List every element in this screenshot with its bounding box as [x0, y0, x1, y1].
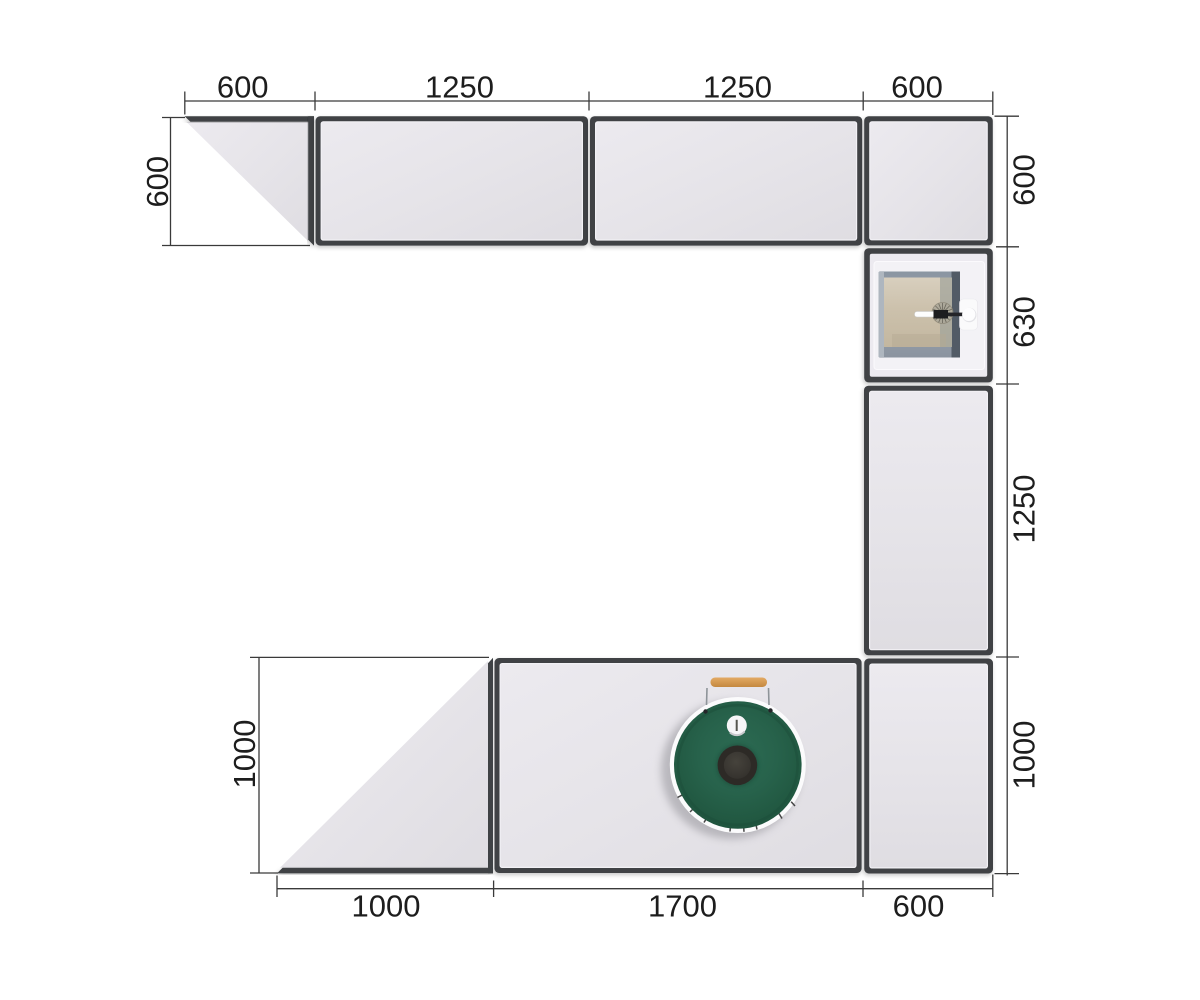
svg-text:1000: 1000	[227, 720, 262, 789]
svg-text:600: 600	[1007, 154, 1042, 206]
svg-text:600: 600	[891, 70, 943, 105]
svg-text:1250: 1250	[703, 70, 772, 105]
svg-text:1000: 1000	[1007, 721, 1042, 790]
svg-text:1250: 1250	[425, 70, 494, 105]
svg-text:1000: 1000	[352, 889, 421, 924]
svg-text:1700: 1700	[648, 889, 717, 924]
svg-text:600: 600	[217, 70, 269, 105]
svg-text:1250: 1250	[1007, 475, 1042, 544]
svg-text:630: 630	[1007, 296, 1042, 348]
svg-text:600: 600	[893, 889, 945, 924]
svg-text:600: 600	[140, 156, 175, 208]
